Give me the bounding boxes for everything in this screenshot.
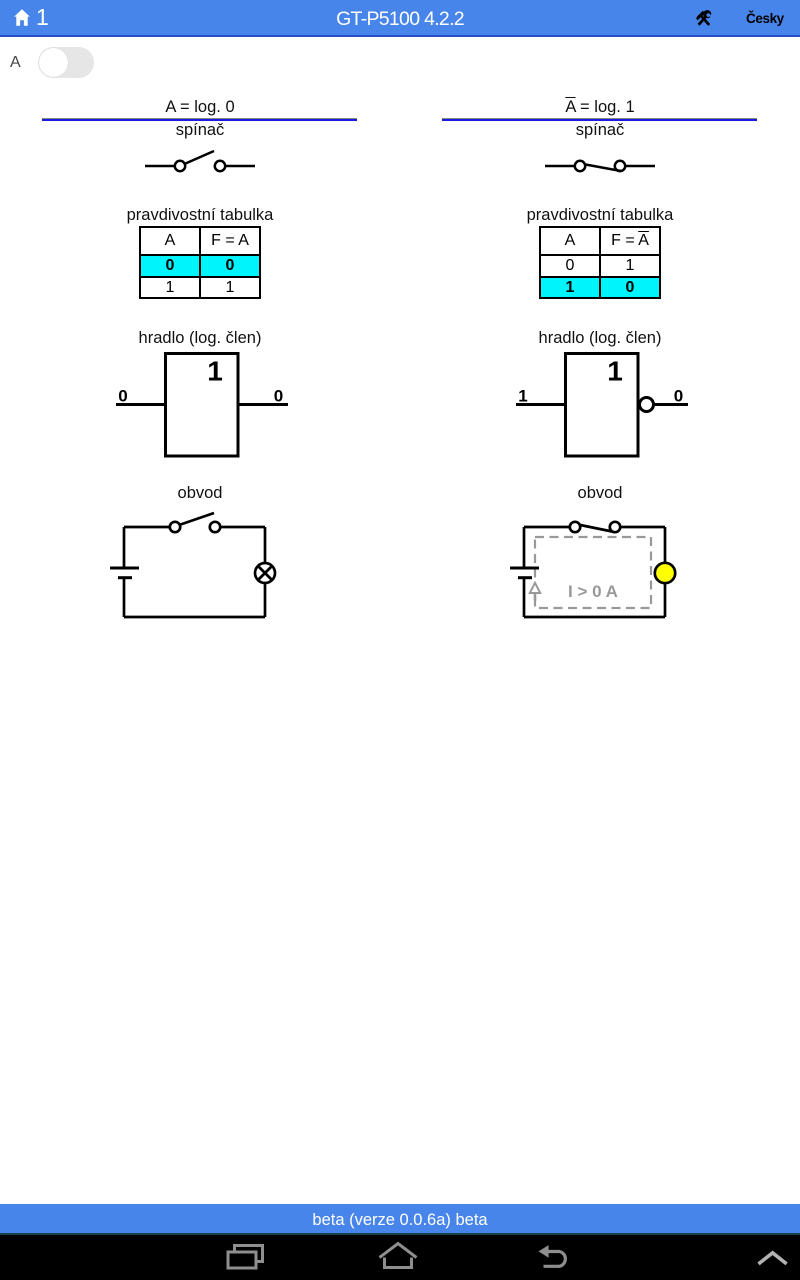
svg-text:1: 1 (607, 356, 623, 387)
svg-text:1: 1 (518, 387, 527, 406)
svg-text:I > 0 A: I > 0 A (568, 582, 618, 601)
svg-text:0: 0 (274, 387, 283, 406)
svg-text:0: 0 (118, 387, 127, 406)
svg-text:0: 0 (674, 387, 683, 406)
svg-text:1: 1 (207, 356, 223, 387)
